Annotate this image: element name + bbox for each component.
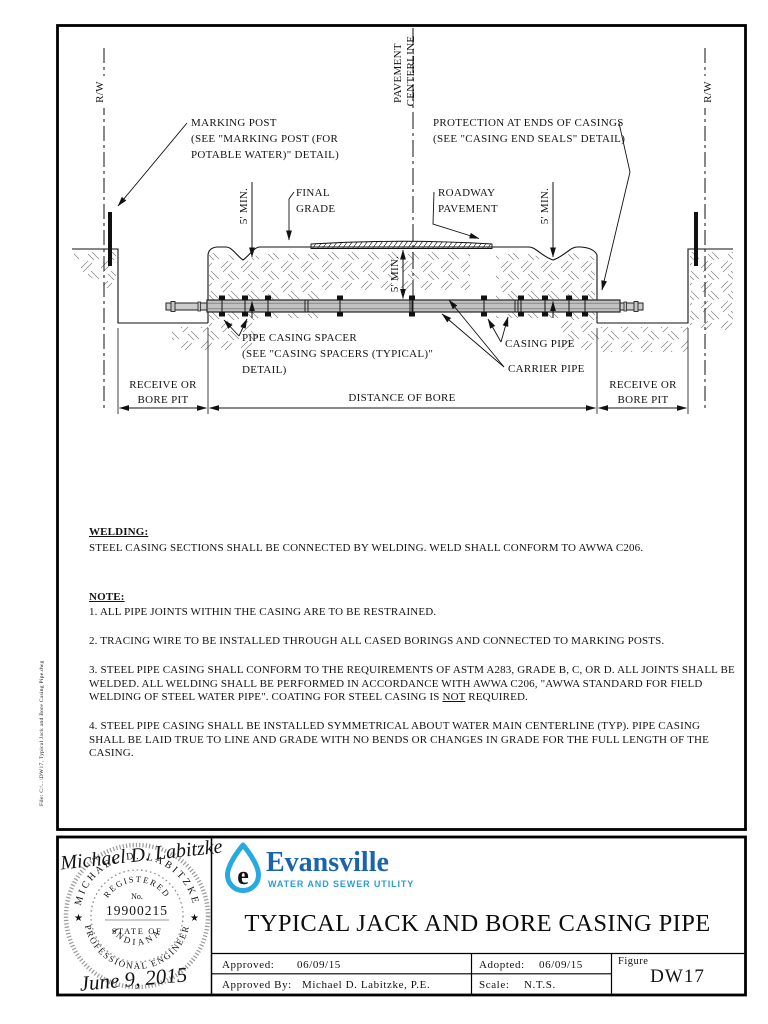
- adopted-date: 06/09/15: [539, 959, 583, 971]
- leader-marking-post: [118, 123, 187, 206]
- scale-label: Scale:: [479, 979, 509, 991]
- protection-label-1: PROTECTION AT ENDS OF CASINGS: [433, 117, 624, 129]
- marking-post-left: [108, 212, 112, 266]
- pe-seal: MICHAEL D. LABITZKE PROFESSIONAL ENGINEE…: [58, 836, 223, 996]
- roadway-pavement-label-1: ROADWAY: [438, 187, 495, 199]
- scale-value: N.T.S.: [524, 979, 556, 991]
- receive-pit-left-label-2: BORE PIT: [138, 394, 189, 406]
- adopted-label: Adopted:: [479, 959, 525, 971]
- carrier-pipe-label: CARRIER PIPE: [508, 363, 585, 375]
- note-heading: NOTE:: [89, 591, 737, 605]
- pavement-centerline-label-1: PAVEMENT: [392, 43, 404, 103]
- receive-pit-left-label-1: RECEIVE OR: [129, 379, 197, 391]
- leader-casing-pipe-1: [488, 319, 501, 342]
- pipe-casing-spacer-label-3: DETAIL): [242, 364, 287, 376]
- receive-pit-right-label-1: RECEIVE OR: [609, 379, 677, 391]
- sheet-title: TYPICAL JACK AND BORE CASING PIPE: [212, 910, 743, 938]
- approved-by-label: Approved By:: [222, 979, 292, 991]
- marking-post-label-1: MARKING POST: [191, 117, 277, 129]
- leader-final-grade: [289, 192, 294, 240]
- signature-date: June 9, 2015: [79, 962, 189, 995]
- final-grade-label-2: GRADE: [296, 203, 335, 215]
- leader-carrier-pipe-1: [442, 314, 504, 367]
- seal-state-of: STATE OF: [112, 926, 163, 936]
- welding-body: STEEL CASING SECTIONS SHALL BE CONNECTED…: [89, 542, 737, 556]
- marking-post-label-2: (SEE "MARKING POST (FOR: [191, 133, 339, 145]
- five-min-left-label: 5' MIN.: [238, 188, 250, 224]
- pipe-bell-joint: [624, 302, 627, 311]
- carrier-pipe-right-end: [620, 303, 643, 310]
- final-grade-label-1: FINAL: [296, 187, 330, 199]
- file-path-note: File: C:\...\DW17, Typical Jack and Bore…: [39, 660, 45, 806]
- receive-pit-right-label-2: BORE PIT: [618, 394, 669, 406]
- pipe-casing-spacer-label-2: (SEE "CASING SPACERS (TYPICAL)": [242, 348, 433, 360]
- approved-by-name: Michael D. Labitzke, P.E.: [302, 979, 430, 991]
- note-1: 1. ALL PIPE JOINTS WITHIN THE CASING ARE…: [89, 606, 737, 620]
- leader-protection: [602, 123, 630, 290]
- seal-star-right-icon: ★: [190, 913, 199, 924]
- five-min-right-label: 5' MIN.: [539, 188, 551, 224]
- note-3-text: 3. STEEL PIPE CASING SHALL CONFORM TO TH…: [89, 664, 735, 703]
- utility-logo-subtitle: WATER AND SEWER UTILITY: [268, 879, 414, 889]
- note-3-tail: REQUIRED.: [465, 691, 528, 703]
- drawing-border: [58, 26, 746, 830]
- seal-number: 19900215: [106, 903, 168, 918]
- distance-of-bore-label: DISTANCE OF BORE: [348, 392, 455, 404]
- drop-letter: e: [237, 861, 249, 890]
- seal-no-label: No.: [131, 892, 143, 901]
- note-2: 2. TRACING WIRE TO BE INSTALLED THROUGH …: [89, 635, 737, 649]
- marking-post-label-3: POTABLE WATER)" DETAIL): [191, 149, 339, 161]
- seal-star-left-icon: ★: [74, 913, 83, 924]
- rw-right-label: R/W: [702, 81, 714, 103]
- pipe-bell-joint: [634, 302, 638, 312]
- note-3-not: NOT: [442, 691, 465, 703]
- welding-heading: WELDING:: [89, 526, 737, 540]
- utility-logo-name: Evansville: [266, 847, 389, 879]
- pavement-centerline-label-2: CENTERLINE: [405, 36, 417, 107]
- engineer-signature: Michael D. Labitzke: [58, 836, 223, 875]
- drawing-sheet: R/W R/W PAVEMENT CENTERLINE MARKING POST…: [0, 0, 768, 1024]
- approved-date: 06/09/15: [297, 959, 341, 971]
- rw-left-label: R/W: [94, 81, 106, 103]
- five-min-center-label: 5' MIN.: [389, 256, 401, 292]
- note-4: 4. STEEL PIPE CASING SHALL BE INSTALLED …: [89, 720, 737, 761]
- approved-label: Approved:: [222, 959, 274, 971]
- note-3: 3. STEEL PIPE CASING SHALL CONFORM TO TH…: [89, 664, 737, 705]
- pipe-bell-joint: [171, 302, 175, 312]
- protection-label-2: (SEE "CASING END SEALS" DETAIL): [433, 133, 625, 145]
- pipe-bell-joint: [198, 302, 201, 311]
- roadway-pavement-label-2: PAVEMENT: [438, 203, 498, 215]
- pipe-casing-spacer-label-1: PIPE CASING SPACER: [242, 332, 357, 344]
- casing-pipe-label: CASING PIPE: [505, 338, 575, 350]
- marking-post-right: [694, 212, 698, 266]
- roadway-pavement-section: [311, 241, 492, 248]
- evansville-drop-icon: e: [228, 845, 259, 891]
- figure-number: DW17: [612, 966, 743, 988]
